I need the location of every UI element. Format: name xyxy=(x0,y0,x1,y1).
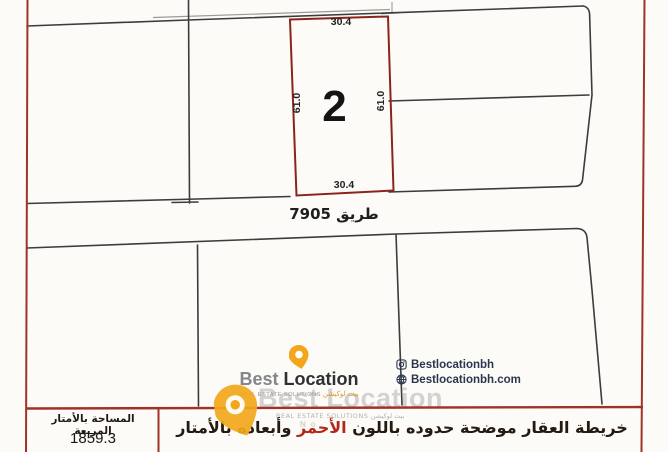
dimension-left: 61.0 xyxy=(291,88,303,118)
west-parcel-line xyxy=(172,0,198,203)
lower-divider-left xyxy=(198,245,199,406)
website-row: Bestlocationbh.com xyxy=(396,372,521,387)
watermark-pin-icon xyxy=(211,381,262,441)
east-boundary-upper xyxy=(389,6,592,192)
location-pin-icon xyxy=(289,345,309,369)
dimension-right: 61.0 xyxy=(375,86,387,116)
right-plots-divider xyxy=(389,95,589,101)
instagram-handle: Bestlocationbh xyxy=(411,359,494,371)
corner-ticks xyxy=(381,2,400,14)
border-right xyxy=(642,0,645,452)
border-left xyxy=(26,0,28,452)
plot-number: 2 xyxy=(310,82,358,132)
road-label: طريق 7905 xyxy=(279,205,389,223)
logo-location: Location xyxy=(284,369,359,389)
website-url: Bestlocationbh.com xyxy=(411,374,521,386)
dimension-bottom: 30.4 xyxy=(304,179,384,191)
property-map-page: Best Location REAL ESTATE SOLUTIONS بيت … xyxy=(0,0,668,452)
globe-icon xyxy=(396,374,407,385)
dimension-top: 30.4 xyxy=(301,16,381,28)
road-north-edge xyxy=(27,197,290,204)
area-value: 1859.3 xyxy=(34,430,152,447)
instagram-row: Bestlocationbh xyxy=(396,357,521,372)
logo-tagline-ar: بيت لوكيشن xyxy=(323,390,359,398)
footer-note-red-word: الأحمر xyxy=(297,418,347,437)
footer-note-before: خريطة العقار موضحة حدوده باللون xyxy=(347,418,628,437)
instagram-icon xyxy=(396,359,407,370)
contact-block: Bestlocationbh Bestlocationbh.com xyxy=(396,357,521,387)
